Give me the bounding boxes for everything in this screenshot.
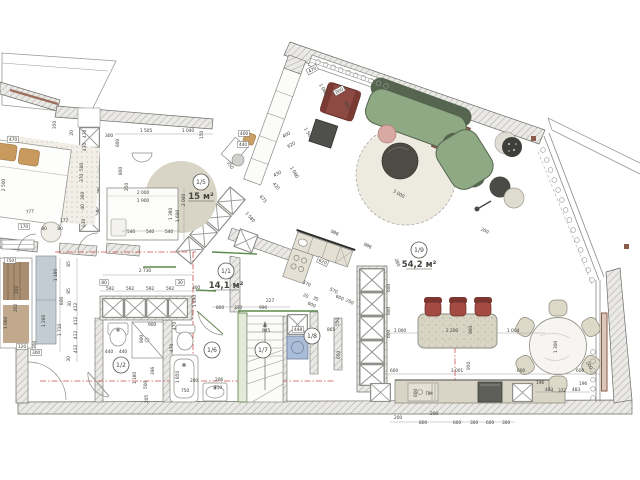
dimension-label: 1 850: [175, 371, 181, 384]
dimension-label: ПМ: [425, 391, 432, 397]
dimension-label: 1 300: [553, 341, 559, 354]
dimension-label: 483: [572, 387, 581, 393]
dimension-label: 483: [545, 387, 554, 393]
dimension-label: 600: [576, 368, 585, 374]
wall-right: [606, 268, 632, 403]
dimension-label: 80: [57, 226, 63, 232]
dimension-label: 1 260: [41, 315, 47, 328]
dimension-label: 85: [66, 261, 72, 267]
dimension-label: 150: [199, 131, 205, 140]
dimension-label: 900: [139, 335, 145, 344]
dimension-label: 592: [146, 286, 155, 292]
dimension-label: 800: [59, 297, 65, 306]
dimension-label: 200: [394, 415, 403, 421]
dimension-label: 412: [73, 317, 79, 326]
curtain-dashed-line: [538, 152, 592, 284]
dimension-label: 40: [80, 204, 86, 210]
dimension-label: 540: [165, 229, 174, 235]
dimension-label: 540: [146, 229, 155, 235]
curtain-scallop: [591, 386, 596, 391]
dimension-label: 600: [486, 420, 495, 426]
room-area: 14,1 м²: [209, 281, 244, 291]
dimension-label: 120: [18, 344, 27, 350]
dimension-label: 430: [272, 169, 282, 178]
dimension-label: 470: [169, 344, 175, 353]
dimension-label: 592: [166, 286, 175, 292]
dimension-label: 448: [294, 327, 303, 333]
dimension-label: 400: [281, 130, 291, 139]
dimension-label: 710: [214, 385, 223, 391]
dimension-label: 350: [52, 121, 58, 130]
radiator: [602, 313, 608, 391]
dimension-label: 400: [240, 131, 249, 137]
dimension-label: 2 000: [137, 190, 150, 196]
dimension-label: 412: [73, 331, 79, 340]
dimension-label: 206: [215, 377, 224, 383]
curtain-scallop: [571, 228, 576, 233]
curtain-scallop: [548, 168, 553, 173]
dimension-label: 310: [234, 305, 243, 311]
room-number: 1/1: [221, 268, 231, 275]
dimension-label: 370: [79, 174, 85, 183]
dimension-label: 205: [144, 395, 150, 404]
curtain-scallop: [556, 188, 561, 193]
dimension-label: 600: [517, 368, 526, 374]
room-number: 1/2: [116, 362, 126, 369]
dimension-label: 600: [386, 284, 392, 293]
dimension-label: 600: [386, 330, 392, 339]
dimension-label: 600: [390, 368, 399, 374]
dimension-label: 865: [327, 327, 336, 333]
dimension-label: 300: [105, 133, 114, 139]
ottoman-pink: [378, 125, 396, 143]
dimension-label: 1 180: [53, 269, 59, 282]
dimension-label: 650: [336, 351, 342, 360]
dimension-label: 2 000: [181, 194, 187, 207]
toilet-1-6: [176, 325, 195, 350]
ottoman-light: [504, 188, 524, 208]
dimension-label: 412: [73, 303, 79, 312]
curtain-scallop: [544, 158, 549, 163]
dimension-label: 202: [14, 286, 20, 295]
curtain-scallop: [563, 208, 568, 213]
dimension-label: 600: [334, 294, 344, 303]
curtain-scallop: [590, 278, 595, 283]
curtain-scallop: [591, 396, 596, 401]
dimension-label: 500: [79, 163, 85, 172]
dimension-label: 1 505: [140, 128, 153, 134]
dimension-label: 300: [32, 350, 41, 356]
dimension-label: 620: [286, 140, 296, 149]
dimension-label: 227: [266, 298, 275, 304]
dimension-label: 986: [362, 242, 372, 251]
dimension-label: 1 710: [57, 324, 63, 337]
dimension-label: 300: [32, 341, 38, 350]
dimension-label: 750: [181, 388, 190, 394]
curtain-scallop: [575, 238, 580, 243]
room-area: 15 м²: [188, 192, 214, 202]
dimension-label: 592: [126, 286, 135, 292]
dimension-label: 420: [271, 181, 281, 191]
floor-lamp-base: [475, 207, 480, 212]
dimension-chains: [60, 134, 600, 422]
dimension-label: 800: [216, 305, 225, 311]
wall-shelf-halfround: [132, 153, 152, 162]
dimension-label: 30: [66, 356, 72, 362]
dimension-label: 2 200: [446, 328, 459, 334]
dimension-label: 777: [25, 208, 34, 215]
dimension-label: 540: [127, 229, 136, 235]
bar-stool-seat: [475, 302, 491, 316]
dimension-label: 600: [453, 420, 462, 426]
dimension-label: 30: [177, 280, 183, 286]
curtain-scallop: [582, 258, 587, 263]
bedside-table: [41, 222, 61, 242]
side-table-dark: [309, 119, 338, 148]
room-number: 1/5: [196, 179, 206, 186]
wall-left-lower: [16, 348, 28, 403]
floor-plan-page: 4707772 50017080801777502022028001 0601 …: [0, 0, 640, 480]
dimension-label: 202: [13, 304, 19, 313]
dimension-label: 1 004: [507, 328, 520, 334]
frame-joint-a: [531, 136, 536, 141]
dimension-label: 200: [430, 411, 439, 417]
washbasin-1-2: [108, 323, 128, 346]
dimension-label: 470: [9, 137, 18, 143]
dimension-label: 412: [73, 345, 79, 354]
dimension-label: 196: [579, 381, 588, 387]
dimension-label: 170: [20, 224, 29, 230]
curtain-scallop: [591, 377, 596, 382]
dimension-label: 600: [413, 389, 419, 398]
plant: [502, 137, 522, 157]
dimension-label: 950: [466, 362, 472, 371]
dimension-label: 80: [41, 226, 47, 232]
dimension-label: 430: [82, 143, 88, 152]
wall-hall-top-b: [106, 243, 140, 256]
dimension-label: 2 500: [1, 179, 7, 192]
curtain-scallop: [578, 248, 583, 253]
dimension-label: 2 730: [139, 268, 152, 274]
bar-stool-seat: [425, 302, 441, 316]
dimension-label: 1 580: [243, 211, 256, 225]
dimension-label: 750: [6, 258, 15, 264]
counter-sink-cabinet: [408, 383, 438, 401]
dimension-label: 986: [329, 229, 339, 238]
frame-joint-b: [624, 244, 629, 249]
dimension-label: 360: [80, 192, 86, 201]
room-number: 1/9: [414, 247, 424, 254]
dimension-label: 470: [82, 130, 88, 139]
dimension-label: 470: [172, 322, 178, 331]
curtain-scallop: [567, 218, 572, 223]
dimension-label: 85: [66, 288, 72, 294]
dimension-label: 600: [386, 307, 392, 316]
dimension-label: 592: [106, 286, 115, 292]
dimension-label: 280: [393, 258, 402, 268]
wall-stairs-right: [283, 316, 287, 402]
dimension-label: 900: [148, 322, 157, 328]
dimension-label: 3 001: [451, 368, 464, 374]
dimension-label: 800: [419, 420, 428, 426]
dimension-label: 945: [262, 328, 271, 334]
dimension-label: 250: [344, 298, 354, 307]
room-number: 1/7: [258, 347, 268, 354]
dimension-label: 570: [301, 280, 311, 289]
dimension-label: 900: [468, 326, 474, 335]
dimension-label: 1 380: [168, 208, 174, 221]
curtain-scallop: [541, 148, 546, 153]
pillow: [0, 143, 17, 162]
room-number: 1/8: [307, 333, 317, 340]
wall-bath-left: [95, 318, 103, 402]
dimension-label: 250: [124, 183, 130, 192]
dimension-label: 196: [536, 380, 545, 386]
room-area: 54,2 м²: [402, 260, 437, 270]
dimension-label: 20: [69, 130, 75, 136]
dimension-label: 800: [118, 167, 124, 176]
dimension-label: 372: [558, 388, 567, 394]
dimension-label: 396: [150, 367, 156, 376]
curtain-scallop: [591, 350, 596, 355]
dimension-label: 300: [470, 420, 479, 426]
floor-plan-canvas: 4707772 50017080801777502022028001 0601 …: [0, 0, 640, 480]
dimension-label: 440: [119, 349, 128, 355]
coffee-table: [382, 143, 418, 179]
dimension-label: 1 060: [3, 317, 9, 330]
stairs-green-wall: [238, 313, 247, 402]
floor-lamp-arm: [479, 201, 491, 208]
dimension-label: 1 080: [288, 166, 300, 180]
dimension-label: 80: [101, 280, 107, 286]
media-wall-strip: [244, 55, 306, 185]
desk-chair: [232, 154, 244, 166]
curtain-scallop: [559, 198, 564, 203]
dining-chair: [549, 300, 567, 316]
bar-stool-seat: [450, 302, 466, 316]
pillow-room5: [111, 219, 126, 236]
dimension-label: 990: [259, 305, 268, 311]
dimension-label: 440: [105, 349, 114, 355]
dimension-label: 1 000: [394, 328, 407, 334]
living-room: [309, 75, 524, 225]
dimension-label: 1 600: [175, 210, 181, 223]
room-number: 1/6: [207, 347, 217, 354]
dimension-label: 1 900: [137, 198, 150, 204]
dimension-label: 20: [302, 292, 310, 300]
dimension-label: 30: [67, 301, 73, 307]
dimension-label: 440: [239, 142, 248, 148]
dimension-label: 550: [335, 318, 341, 327]
pillow: [18, 148, 40, 167]
dimension-label: 200: [479, 227, 489, 236]
dimension-label: 1 180: [132, 372, 138, 385]
dimension-label: 177: [60, 218, 69, 224]
dimension-label: 35: [312, 295, 320, 303]
dimension-label: 300: [502, 420, 511, 426]
curtain-scallop: [552, 178, 557, 183]
dimension-label: 300: [192, 285, 201, 291]
dimension-label: 500: [143, 381, 149, 390]
dimension-label: 600: [115, 139, 121, 148]
dimension-label: 1 040: [182, 128, 195, 134]
dimension-label: 675: [258, 194, 268, 204]
dimension-label: 630: [81, 219, 87, 228]
dimension-label: 1 490: [192, 295, 198, 308]
dimension-label: 200: [190, 378, 199, 384]
